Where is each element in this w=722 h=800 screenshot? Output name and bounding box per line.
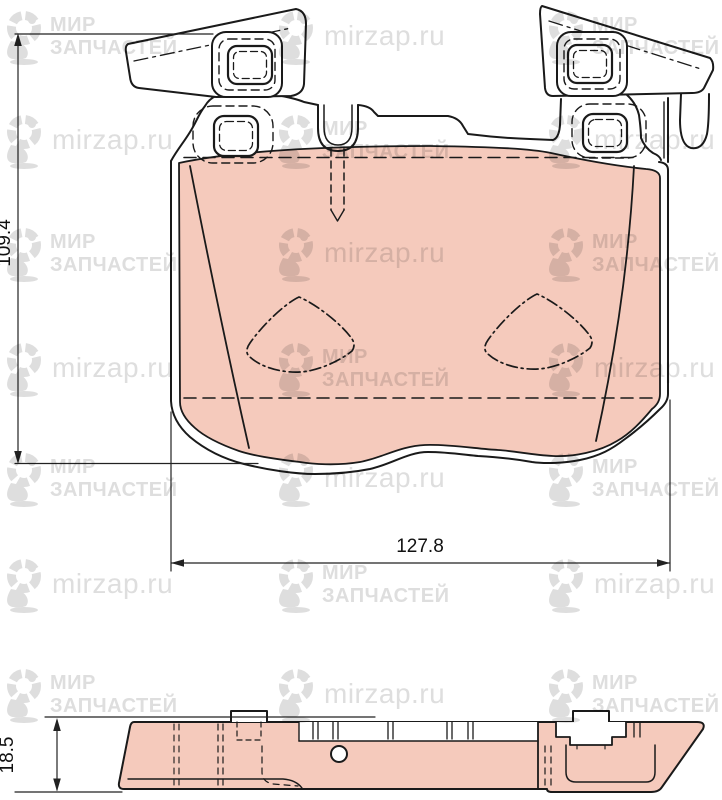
retainer-tab-right [573,711,609,722]
arrow-up-icon [14,33,22,46]
backplate-mid-edge [282,96,318,105]
arrow-down-icon [14,451,22,464]
thickness-dimension-label: 18.5 [0,737,18,774]
width-dimension-label: 127.8 [396,536,444,557]
backplate-step-edge [358,99,561,140]
arrow-up-icon [53,718,61,731]
brake-pad-drawing-page: 109.4 127.8 [0,0,722,800]
left-mounting-ear [126,9,306,97]
front-view [126,6,713,474]
guide-hole-left [228,46,272,84]
profile-view [119,711,704,792]
technical-drawing: 109.4 127.8 [0,0,722,800]
height-dimension-label: 109.4 [0,219,15,267]
abutment-hole-right [572,104,646,158]
arrow-left-icon [171,559,184,567]
abutment-hook [680,94,709,148]
guide-hole-right [568,45,612,83]
arrow-right-icon [657,559,670,567]
arrow-down-icon [53,779,61,792]
spring-notch [318,105,358,151]
friction-pad [179,146,660,464]
rivet-hole [331,746,347,762]
